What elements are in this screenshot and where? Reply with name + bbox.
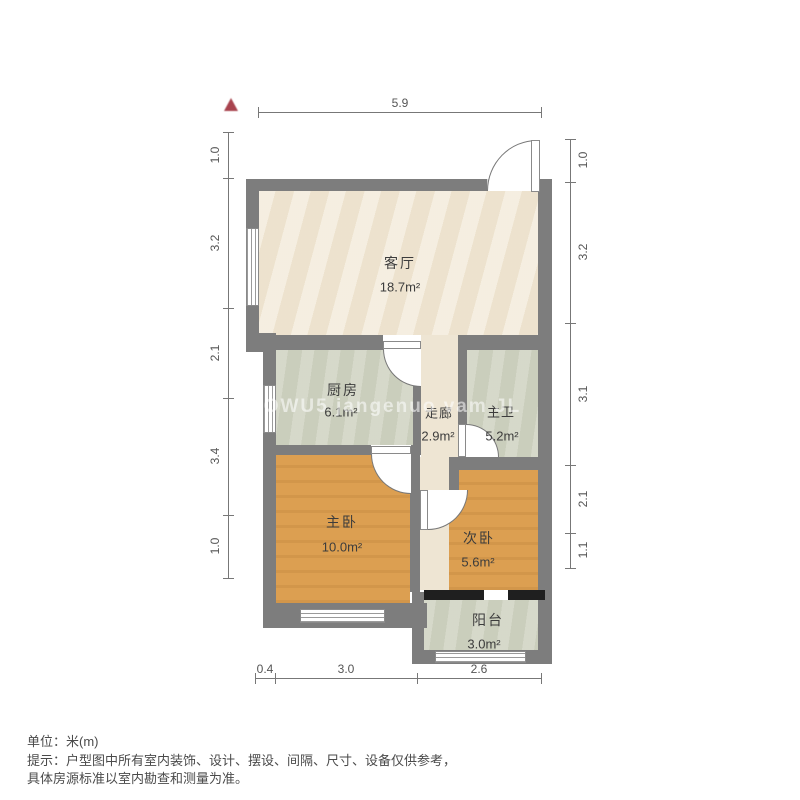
dim-tick <box>565 533 576 534</box>
dim-right-4: 1.1 <box>576 535 590 565</box>
living-room-label: 客厅 <box>384 253 416 273</box>
entrance-door-swing <box>487 140 537 191</box>
second-bedroom-area: 5.6m² <box>461 555 494 570</box>
disclaimer-line1: 提示：户型图中所有室内装饰、设计、摆设、间隔、尺寸、设备仅供参考， <box>27 750 456 769</box>
north-arrow-icon <box>224 98 238 111</box>
dim-left-1: 3.2 <box>208 228 222 258</box>
wall-living-kitchen <box>259 335 383 350</box>
corridor-area: 2.9m² <box>421 429 454 444</box>
dim-tick <box>565 568 576 569</box>
dim-line-top <box>258 112 542 113</box>
dim-tick <box>565 139 576 140</box>
dim-left-3: 3.4 <box>208 441 222 471</box>
entrance-door-leaf <box>531 140 540 192</box>
dim-left-4: 1.0 <box>208 531 222 561</box>
floorplan-canvas: 客厅 18.7m² 厨房 6.1m² 走廊 2.9m² 主卫 5.2m² 主卧 … <box>0 0 800 800</box>
dim-tick <box>541 107 542 118</box>
balcony-threshold-gap <box>484 590 508 600</box>
balcony-area: 3.0m² <box>467 637 500 652</box>
dim-tick <box>417 673 418 684</box>
bath-door-leaf <box>458 424 466 457</box>
wall-master-right <box>410 455 420 592</box>
dim-tick <box>565 182 576 183</box>
dim-line-left <box>228 132 229 578</box>
dim-right-2: 3.1 <box>576 379 590 409</box>
dim-tick <box>223 178 234 179</box>
master-bedroom-label: 主卧 <box>326 512 358 532</box>
dim-line-bottom <box>255 678 542 679</box>
wall-second-top <box>449 457 552 470</box>
wall-bath-top <box>462 335 538 350</box>
living-room-area: 18.7m² <box>380 280 420 295</box>
dim-tick <box>258 107 259 118</box>
kitchen-door-leaf <box>383 341 421 349</box>
dim-tick <box>223 308 234 309</box>
dim-bottom-2: 2.6 <box>464 662 494 676</box>
balcony-label: 阳台 <box>472 610 504 630</box>
dim-right-1: 3.2 <box>576 237 590 267</box>
master-bedroom-area: 10.0m² <box>322 540 362 555</box>
dim-tick <box>541 673 542 684</box>
wall-second-left <box>449 470 459 492</box>
dim-right-3: 2.1 <box>576 484 590 514</box>
dim-tick <box>223 515 234 516</box>
dim-right-0: 1.0 <box>576 145 590 175</box>
master-bedroom-window <box>300 609 385 623</box>
wall-left-lower <box>263 333 276 628</box>
second-door-leaf <box>420 490 428 530</box>
unit-label: 单位：米(m) <box>27 731 99 750</box>
dim-tick <box>223 132 234 133</box>
dim-bottom-0: 0.4 <box>250 662 280 676</box>
second-bedroom-label: 次卧 <box>463 528 495 548</box>
dim-tick <box>565 465 576 466</box>
master-door-leaf <box>371 446 411 454</box>
disclaimer-line2: 具体房源标准以室内勘查和测量为准。 <box>27 768 248 787</box>
watermark-text: HOWU5 jangenuo vam JL <box>248 396 521 418</box>
dim-bottom-1: 3.0 <box>331 662 361 676</box>
dim-left-2: 2.1 <box>208 338 222 368</box>
dim-tick <box>565 323 576 324</box>
wall-kitchen-bottom-right <box>411 445 421 455</box>
dim-tick <box>223 578 234 579</box>
bath-area: 5.2m² <box>485 429 518 444</box>
dim-tick <box>223 398 234 399</box>
living-window <box>246 228 259 306</box>
wall-kitchen-bottom <box>263 445 371 455</box>
dim-top-0: 5.9 <box>385 96 415 110</box>
dim-left-0: 1.0 <box>208 140 222 170</box>
dim-line-right <box>570 139 571 568</box>
